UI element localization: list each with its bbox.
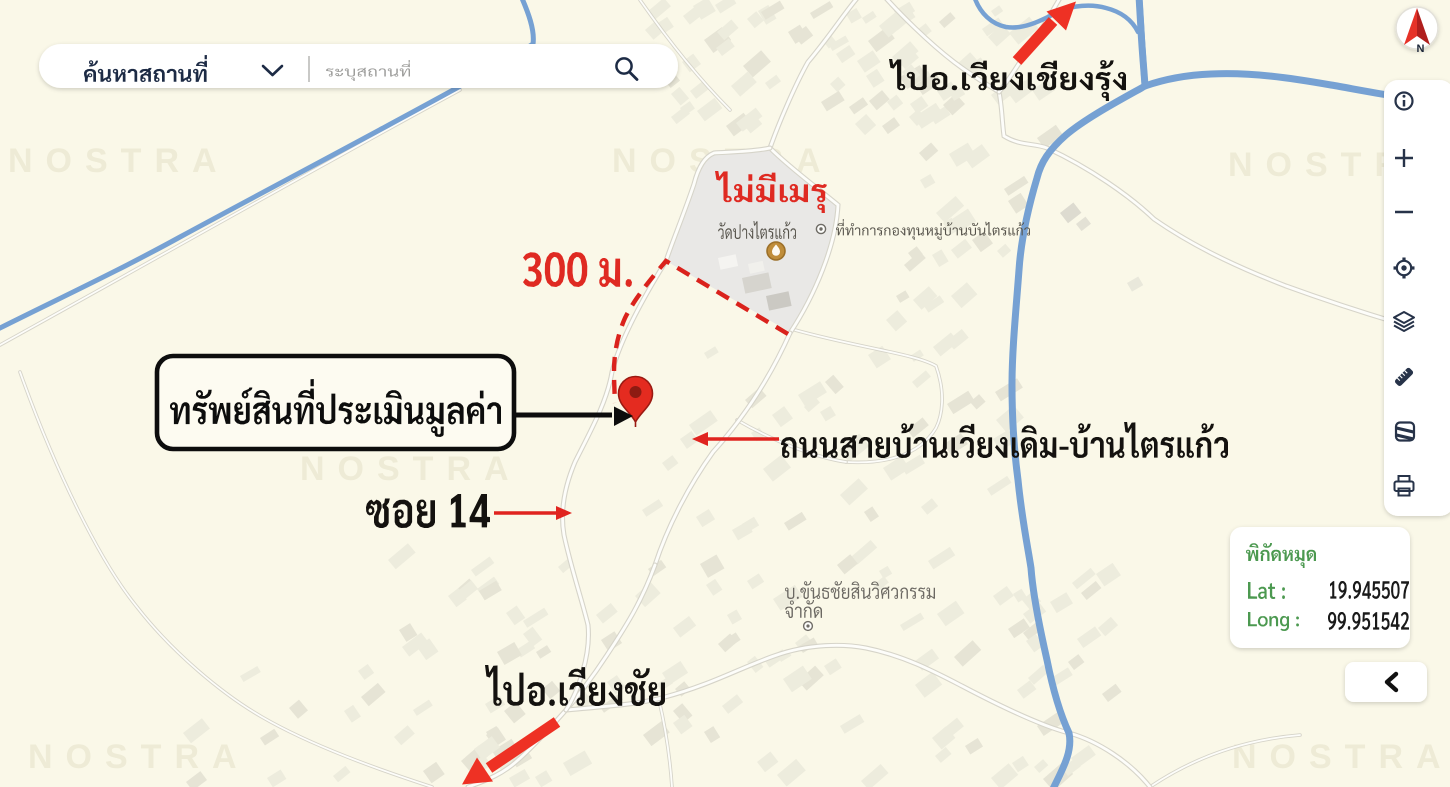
svg-text:NOSTRA: NOSTRA — [28, 738, 250, 776]
svg-text:N: N — [1417, 43, 1425, 55]
svg-text:NOSTRA: NOSTRA — [300, 450, 522, 488]
svg-text:NOSTRA: NOSTRA — [1232, 738, 1450, 776]
svg-text:NOSTRA: NOSTRA — [8, 142, 230, 180]
